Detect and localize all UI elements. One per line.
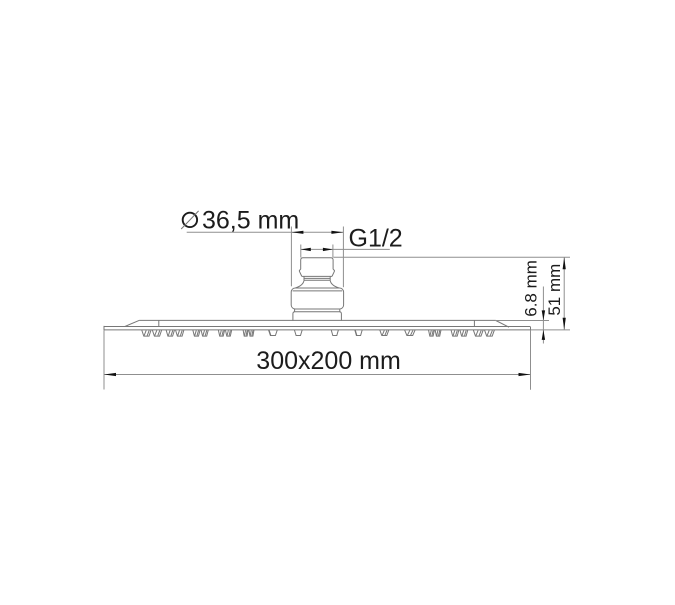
svg-text:6.8 mm: 6.8 mm xyxy=(521,260,540,317)
svg-text:36,5 mm: 36,5 mm xyxy=(202,207,299,235)
svg-text:300x200 mm: 300x200 mm xyxy=(256,347,401,375)
svg-text:51 mm: 51 mm xyxy=(545,264,564,316)
svg-text:G1/2: G1/2 xyxy=(349,224,403,252)
